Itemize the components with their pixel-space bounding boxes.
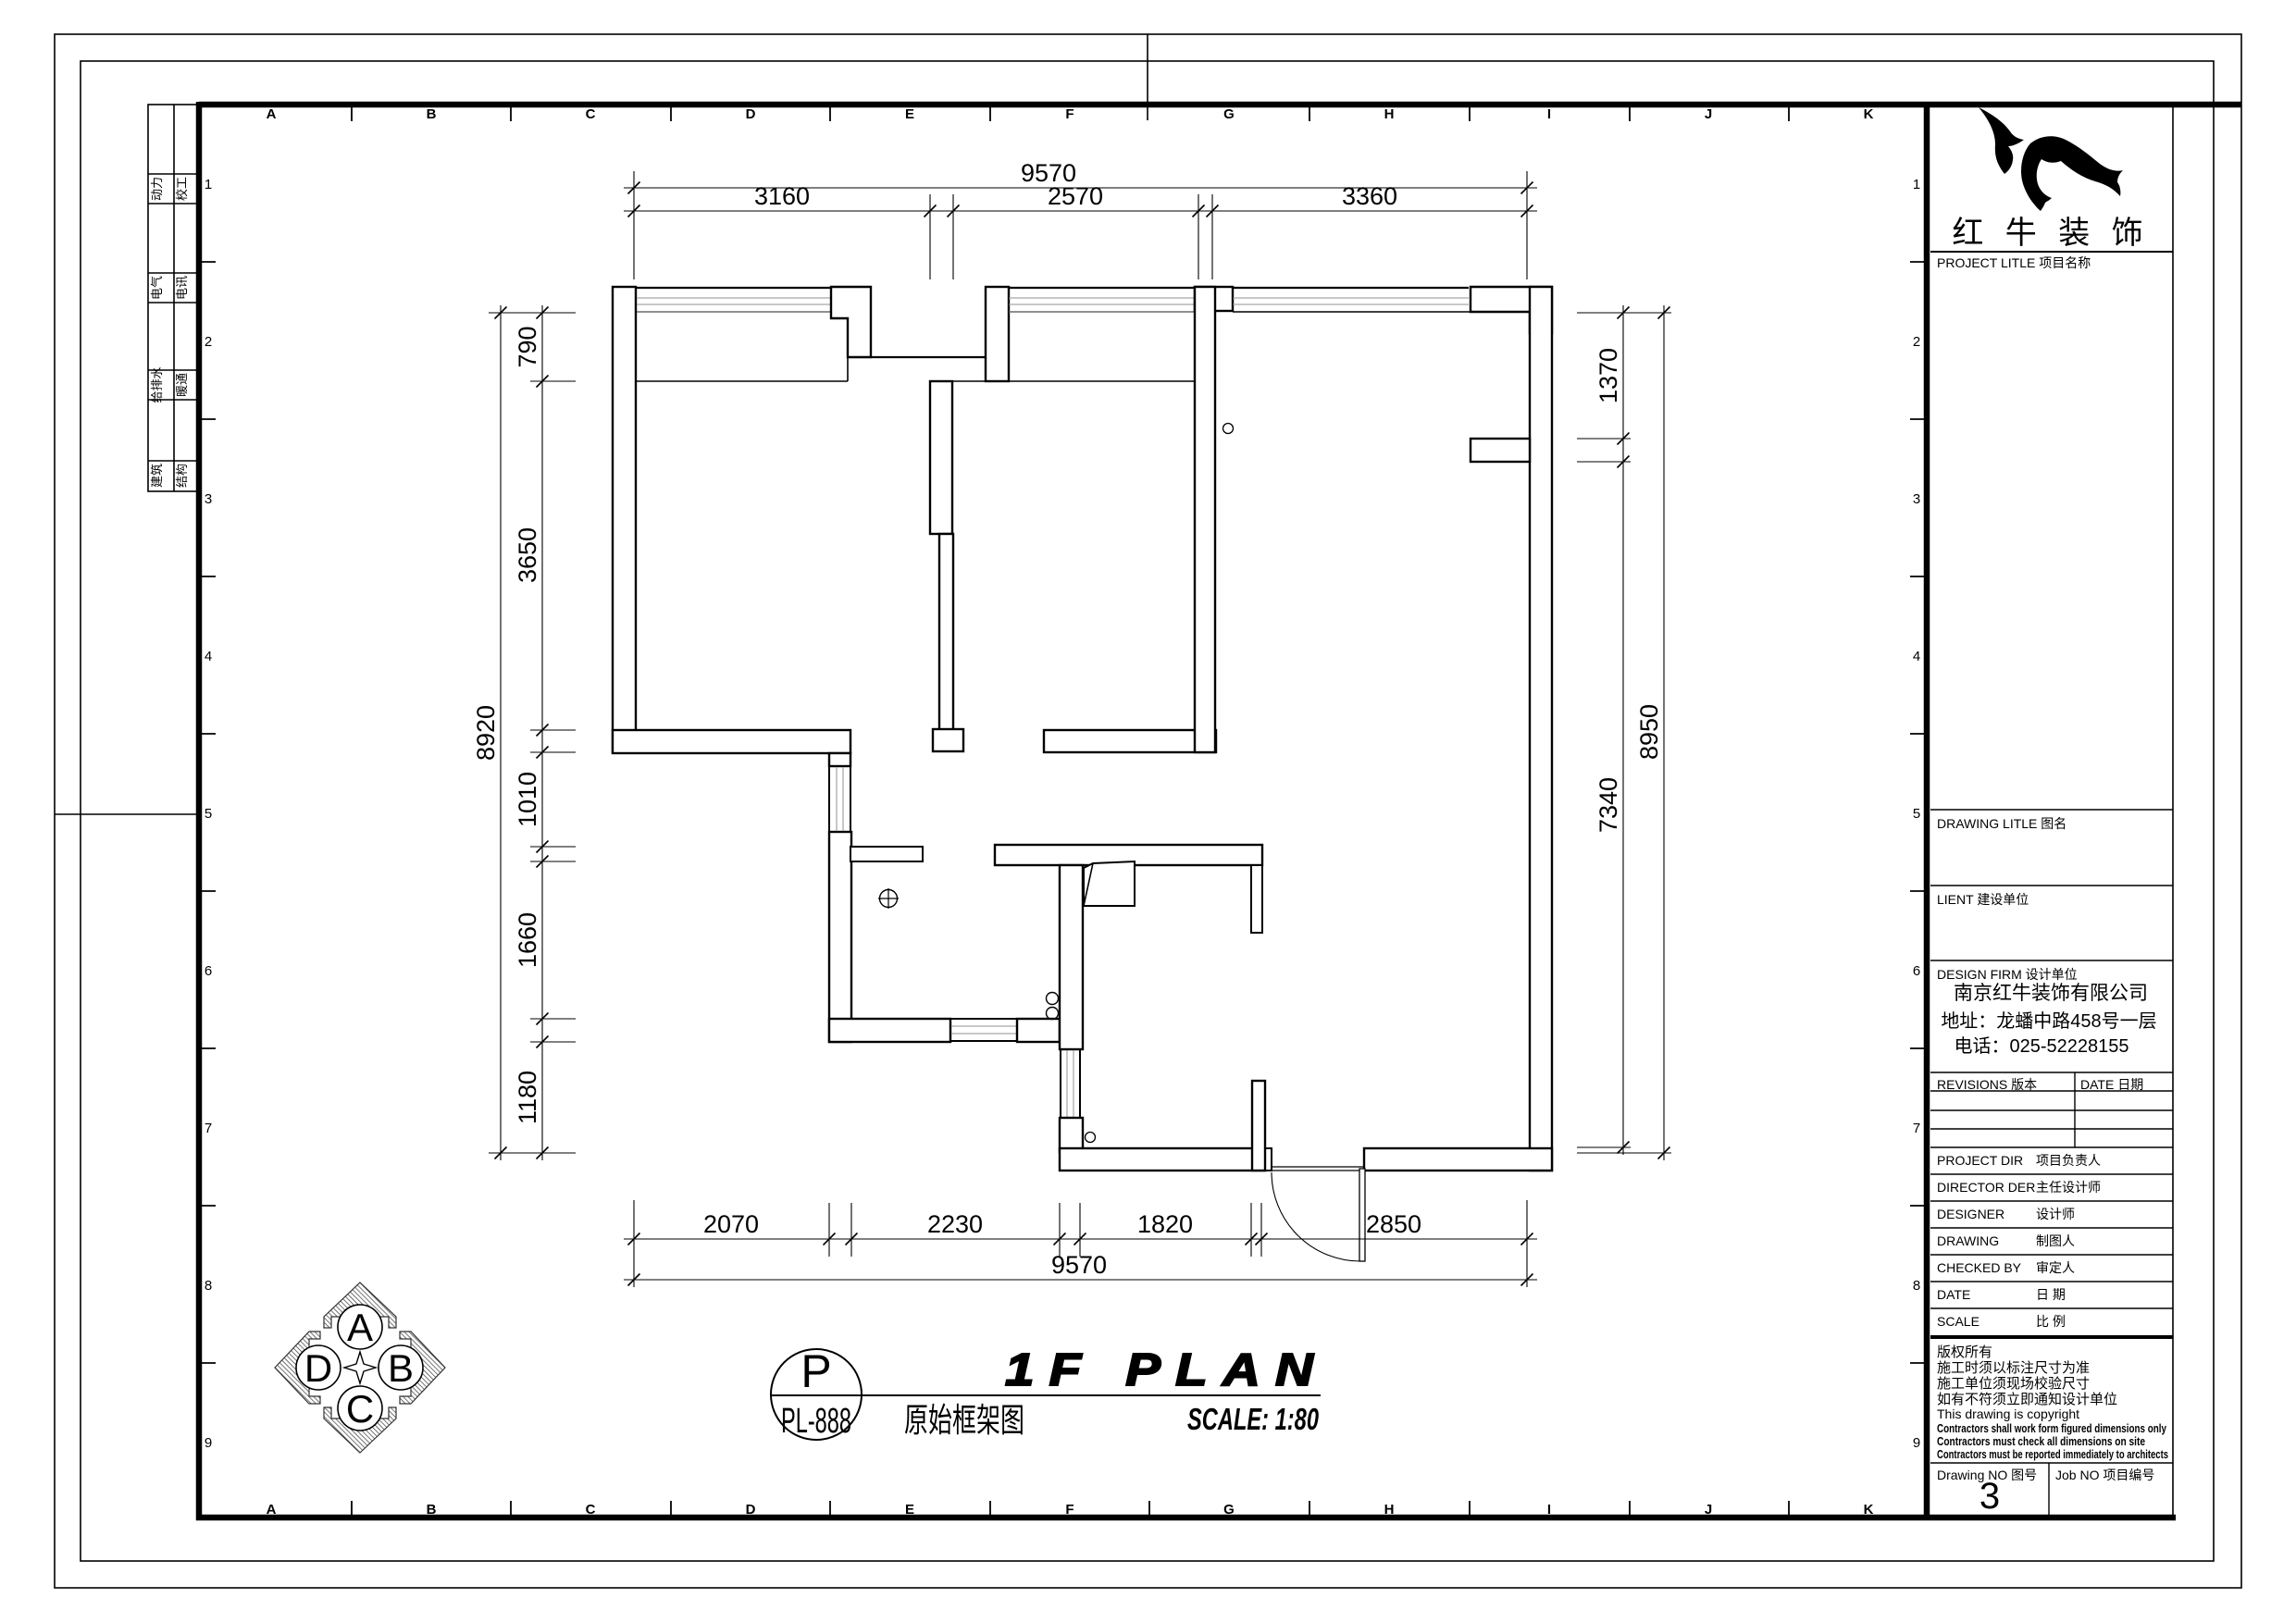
svg-text:REVISIONS 版本: REVISIONS 版本 (1937, 1077, 2037, 1092)
svg-text:2850: 2850 (1366, 1210, 1421, 1238)
svg-text:E: E (905, 106, 914, 122)
svg-text:B: B (388, 1346, 414, 1390)
svg-text:校工: 校工 (175, 177, 189, 201)
svg-text:1: 1 (1913, 177, 1920, 192)
svg-text:1820: 1820 (1137, 1210, 1193, 1238)
svg-text:DRAWING LITLE 图名: DRAWING LITLE 图名 (1937, 816, 2066, 831)
svg-text:D: D (746, 1502, 756, 1518)
svg-text:SCALE: SCALE (1937, 1314, 1980, 1329)
svg-text:I: I (1547, 1502, 1551, 1518)
svg-text:1370: 1370 (1595, 348, 1622, 403)
svg-text:C: C (346, 1387, 374, 1431)
svg-text:3360: 3360 (1342, 182, 1397, 210)
svg-text:Contractors shall work form fi: Contractors shall work form figured dime… (1937, 1422, 2166, 1435)
svg-text:1: 1 (205, 177, 212, 192)
svg-text:This drawing is copyright: This drawing is copyright (1937, 1406, 2079, 1421)
svg-text:红 牛 装 饰: 红 牛 装 饰 (1952, 216, 2149, 251)
svg-text:LIENT 建设单位: LIENT 建设单位 (1937, 892, 2029, 907)
svg-text:如有不符须立即通知设计单位: 如有不符须立即通知设计单位 (1937, 1392, 2117, 1407)
svg-text:8920: 8920 (472, 705, 500, 761)
svg-text:9: 9 (1913, 1435, 1920, 1451)
svg-text:790: 790 (514, 326, 541, 367)
svg-text:F: F (1065, 1502, 1074, 1518)
svg-text:原始框架图: 原始框架图 (904, 1401, 1024, 1439)
svg-text:2: 2 (205, 334, 212, 350)
svg-text:PROJECT DIR: PROJECT DIR (1937, 1153, 2023, 1168)
svg-text:2570: 2570 (1048, 182, 1103, 210)
svg-text:D: D (304, 1346, 332, 1390)
svg-text:DRAWING: DRAWING (1937, 1233, 1999, 1248)
svg-text:SCALE: 1:80: SCALE: 1:80 (1187, 1402, 1319, 1436)
svg-text:J: J (1705, 106, 1712, 122)
svg-text:3650: 3650 (514, 527, 541, 583)
svg-text:1660: 1660 (514, 912, 541, 968)
svg-text:2: 2 (1913, 334, 1920, 350)
svg-text:A: A (347, 1306, 373, 1349)
svg-text:3: 3 (205, 491, 212, 507)
svg-text:电气: 电气 (150, 276, 164, 300)
svg-text:DESIGN FIRM 设计单位: DESIGN FIRM 设计单位 (1937, 967, 2078, 982)
svg-text:9570: 9570 (1051, 1251, 1107, 1279)
svg-text:6: 6 (205, 963, 212, 979)
svg-text:项目负责人: 项目负责人 (2036, 1153, 2101, 1168)
svg-text:C: C (586, 106, 596, 122)
svg-text:PL-888: PL-888 (781, 1402, 851, 1441)
svg-text:动力: 动力 (150, 177, 164, 201)
svg-text:8: 8 (1913, 1278, 1920, 1294)
svg-text:给排水: 给排水 (150, 366, 164, 403)
svg-text:暖通: 暖通 (175, 373, 189, 397)
svg-text:比 例: 比 例 (2036, 1314, 2066, 1329)
svg-text:南京红牛装饰有限公司: 南京红牛装饰有限公司 (1954, 983, 2148, 1004)
svg-text:6: 6 (1913, 963, 1920, 979)
svg-text:B: B (427, 1502, 437, 1518)
svg-text:施工单位须现场校验尺寸: 施工单位须现场校验尺寸 (1937, 1376, 2090, 1392)
svg-text:审定人: 审定人 (2036, 1260, 2075, 1275)
svg-text:结构: 结构 (175, 464, 189, 488)
svg-text:电讯: 电讯 (175, 276, 189, 300)
svg-text:制图人: 制图人 (2036, 1233, 2075, 1248)
svg-text:DIRECTOR DER: DIRECTOR DER (1937, 1180, 2035, 1195)
svg-text:2230: 2230 (927, 1210, 983, 1238)
svg-text:8: 8 (205, 1278, 212, 1294)
svg-text:7: 7 (205, 1121, 212, 1136)
svg-text:主任设计师: 主任设计师 (2036, 1180, 2101, 1195)
svg-text:PROJECT LITLE 项目名称: PROJECT LITLE 项目名称 (1937, 255, 2091, 270)
svg-text:4: 4 (1913, 649, 1920, 664)
svg-text:2070: 2070 (703, 1210, 759, 1238)
svg-text:3: 3 (1913, 491, 1920, 507)
svg-text:3: 3 (1980, 1476, 2000, 1517)
svg-text:K: K (1864, 1502, 1874, 1518)
svg-text:8950: 8950 (1635, 704, 1663, 760)
svg-text:Job NO 项目编号: Job NO 项目编号 (2055, 1468, 2154, 1482)
svg-text:1180: 1180 (514, 1071, 541, 1124)
svg-text:I: I (1547, 106, 1551, 122)
svg-text:A: A (267, 106, 277, 122)
svg-text:H: H (1384, 106, 1395, 122)
svg-text:CHECKED BY: CHECKED BY (1937, 1260, 2022, 1275)
svg-text:A: A (267, 1502, 277, 1518)
svg-text:4: 4 (205, 649, 212, 664)
svg-text:地址：龙蟠中路458号一层: 地址：龙蟠中路458号一层 (1941, 1010, 2156, 1032)
svg-text:1F PLAN: 1F PLAN (1005, 1345, 1328, 1395)
svg-text:设计师: 设计师 (2036, 1207, 2075, 1221)
svg-text:Contractors must be reported i: Contractors must be reported immediately… (1937, 1448, 2168, 1461)
svg-text:F: F (1065, 106, 1074, 122)
svg-text:C: C (586, 1502, 596, 1518)
svg-text:P: P (800, 1345, 831, 1397)
svg-text:J: J (1705, 1502, 1712, 1518)
svg-text:G: G (1223, 1502, 1235, 1518)
svg-text:电话：025-52228155: 电话：025-52228155 (1954, 1035, 2128, 1057)
svg-text:D: D (746, 106, 756, 122)
svg-text:5: 5 (1913, 806, 1920, 822)
svg-text:施工时须以标注尺寸为准: 施工时须以标注尺寸为准 (1937, 1360, 2090, 1376)
svg-text:E: E (905, 1502, 914, 1518)
svg-text:建筑: 建筑 (150, 464, 164, 488)
svg-text:7340: 7340 (1595, 777, 1622, 833)
svg-text:7: 7 (1913, 1121, 1920, 1136)
svg-text:日 期: 日 期 (2036, 1287, 2066, 1302)
svg-text:5: 5 (205, 806, 212, 822)
svg-text:版权所有: 版权所有 (1937, 1344, 1992, 1360)
svg-text:1010: 1010 (514, 772, 541, 827)
svg-text:K: K (1864, 106, 1874, 122)
svg-text:DATE: DATE (1937, 1287, 1970, 1302)
svg-text:9: 9 (205, 1435, 212, 1451)
svg-text:DATE 日期: DATE 日期 (2080, 1077, 2143, 1092)
svg-text:Contractors must check all dim: Contractors must check all dimensions on… (1937, 1435, 2145, 1448)
svg-text:H: H (1384, 1502, 1395, 1518)
svg-text:G: G (1223, 106, 1235, 122)
svg-text:3160: 3160 (754, 182, 810, 210)
svg-text:B: B (427, 106, 437, 122)
svg-text:DESIGNER: DESIGNER (1937, 1207, 2004, 1221)
